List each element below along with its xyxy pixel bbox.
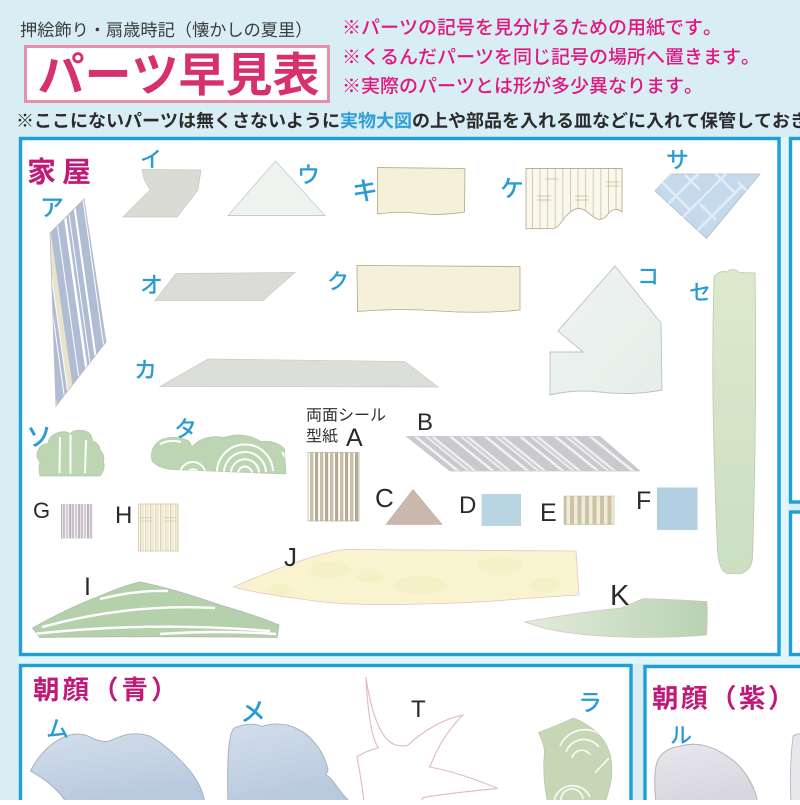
svg-text:F: F — [636, 487, 651, 515]
svg-text:K: K — [610, 580, 630, 612]
svg-text:C: C — [375, 483, 394, 513]
svg-text:H: H — [115, 502, 132, 529]
svg-text:A: A — [346, 424, 363, 452]
svg-text:D: D — [459, 492, 476, 519]
svg-text:T: T — [411, 696, 426, 723]
svg-text:G: G — [33, 498, 50, 523]
svg-text:E: E — [540, 499, 557, 527]
svg-text:B: B — [417, 409, 433, 436]
svg-text:J: J — [284, 542, 297, 572]
svg-text:I: I — [84, 573, 91, 601]
